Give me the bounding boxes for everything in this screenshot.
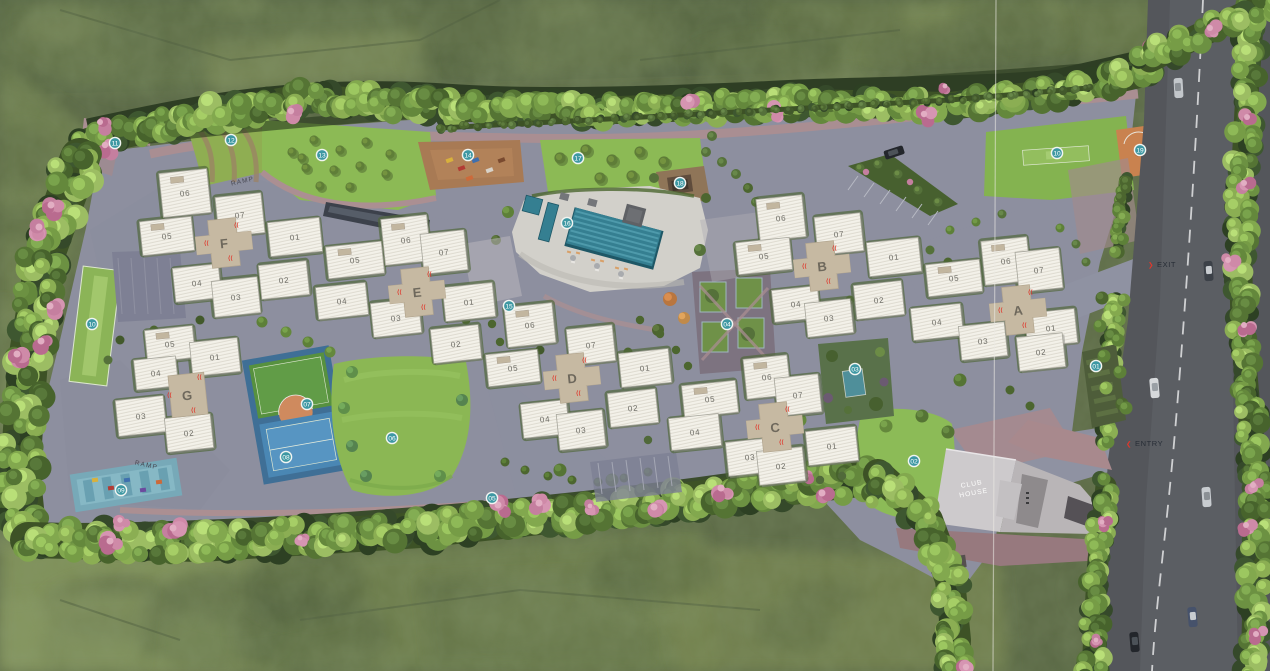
svg-text:⟨⟨: ⟨⟨ bbox=[191, 407, 196, 414]
svg-text:ENTRY: ENTRY bbox=[1135, 439, 1163, 448]
svg-text:04: 04 bbox=[723, 321, 731, 328]
svg-text:18: 18 bbox=[676, 180, 684, 187]
svg-text:⟨⟨: ⟨⟨ bbox=[167, 392, 172, 399]
svg-text:D: D bbox=[567, 371, 578, 387]
svg-text:04: 04 bbox=[931, 317, 942, 327]
svg-text:07: 07 bbox=[438, 247, 449, 257]
svg-text:❯: ❯ bbox=[1148, 261, 1153, 269]
svg-text:07: 07 bbox=[303, 401, 311, 408]
svg-text:⟨⟨: ⟨⟨ bbox=[998, 307, 1003, 314]
svg-text:02: 02 bbox=[910, 458, 918, 465]
svg-text:⟨⟨: ⟨⟨ bbox=[785, 406, 790, 413]
svg-text:⟨⟨: ⟨⟨ bbox=[582, 357, 587, 364]
svg-text:05: 05 bbox=[704, 394, 715, 404]
svg-text:03: 03 bbox=[135, 411, 146, 421]
svg-text:02: 02 bbox=[873, 295, 884, 305]
svg-text:01: 01 bbox=[289, 232, 300, 242]
svg-text:⟨⟨: ⟨⟨ bbox=[421, 304, 426, 311]
svg-text:01: 01 bbox=[1045, 323, 1056, 333]
svg-text:05: 05 bbox=[488, 495, 496, 502]
svg-text:02: 02 bbox=[278, 275, 289, 285]
svg-text:03: 03 bbox=[575, 425, 586, 435]
svg-text:07: 07 bbox=[234, 210, 245, 220]
svg-text:09: 09 bbox=[117, 487, 125, 494]
svg-text:02: 02 bbox=[450, 339, 461, 349]
svg-text:❮: ❮ bbox=[1126, 440, 1131, 448]
svg-text:07: 07 bbox=[585, 340, 596, 350]
svg-text:12: 12 bbox=[227, 137, 235, 144]
svg-text:02: 02 bbox=[775, 461, 786, 471]
svg-text:06: 06 bbox=[179, 188, 190, 198]
svg-text:⟨⟨: ⟨⟨ bbox=[204, 240, 209, 247]
svg-text:⟨⟨: ⟨⟨ bbox=[826, 278, 831, 285]
svg-text:01: 01 bbox=[1092, 363, 1100, 370]
svg-text:03: 03 bbox=[851, 366, 859, 373]
svg-text:07: 07 bbox=[1033, 265, 1044, 275]
svg-text:⟨⟨: ⟨⟨ bbox=[755, 424, 760, 431]
svg-text:10: 10 bbox=[1053, 150, 1061, 157]
svg-text:05: 05 bbox=[507, 363, 518, 373]
svg-text:⟨⟨: ⟨⟨ bbox=[576, 390, 581, 397]
svg-text:04: 04 bbox=[150, 368, 161, 378]
svg-text:04: 04 bbox=[790, 299, 801, 309]
svg-text:04: 04 bbox=[336, 296, 347, 306]
svg-text:02: 02 bbox=[1035, 347, 1046, 357]
svg-text:14: 14 bbox=[464, 152, 472, 159]
svg-text:⟨⟨: ⟨⟨ bbox=[779, 439, 784, 446]
svg-text:17: 17 bbox=[574, 155, 582, 162]
svg-text:03: 03 bbox=[230, 292, 241, 302]
svg-text:06: 06 bbox=[400, 235, 411, 245]
svg-text:16: 16 bbox=[563, 220, 571, 227]
svg-text:05: 05 bbox=[349, 255, 360, 265]
svg-text:07: 07 bbox=[833, 229, 844, 239]
svg-text:03: 03 bbox=[390, 313, 401, 323]
svg-text:⟨⟨: ⟨⟨ bbox=[802, 263, 807, 270]
svg-text:03: 03 bbox=[977, 336, 988, 346]
svg-text:B: B bbox=[817, 259, 828, 275]
svg-text:05: 05 bbox=[161, 231, 172, 241]
svg-text:02: 02 bbox=[183, 428, 194, 438]
svg-text:01: 01 bbox=[209, 352, 220, 362]
svg-text:⟨⟨: ⟨⟨ bbox=[832, 245, 837, 252]
svg-text:⟨⟨: ⟨⟨ bbox=[197, 374, 202, 381]
svg-text:01: 01 bbox=[826, 441, 837, 451]
svg-text:04: 04 bbox=[539, 414, 550, 424]
svg-text:10: 10 bbox=[88, 321, 96, 328]
svg-text:G: G bbox=[181, 388, 193, 404]
svg-text:06: 06 bbox=[761, 372, 772, 382]
svg-text:06: 06 bbox=[524, 320, 535, 330]
svg-text:08: 08 bbox=[282, 454, 290, 461]
svg-text:EXIT: EXIT bbox=[1157, 260, 1176, 269]
svg-text:11: 11 bbox=[112, 140, 119, 147]
svg-text:02: 02 bbox=[627, 403, 638, 413]
svg-text:⟨⟨: ⟨⟨ bbox=[228, 255, 233, 262]
svg-text:03: 03 bbox=[823, 313, 834, 323]
svg-text:01: 01 bbox=[639, 363, 650, 373]
svg-text:⟨⟨: ⟨⟨ bbox=[552, 375, 557, 382]
svg-text:01: 01 bbox=[463, 297, 474, 307]
svg-text:06: 06 bbox=[388, 435, 396, 442]
svg-text:04: 04 bbox=[191, 278, 202, 288]
svg-text:07: 07 bbox=[792, 390, 803, 400]
svg-text:13: 13 bbox=[318, 152, 326, 159]
svg-text:19: 19 bbox=[1136, 147, 1144, 154]
svg-text:01: 01 bbox=[888, 252, 899, 262]
svg-text:04: 04 bbox=[689, 427, 700, 437]
svg-text:F: F bbox=[219, 236, 229, 252]
svg-text:⟨⟨: ⟨⟨ bbox=[427, 271, 432, 278]
svg-text:06: 06 bbox=[775, 213, 786, 223]
svg-text:05: 05 bbox=[948, 273, 959, 283]
svg-text:⟨⟨: ⟨⟨ bbox=[397, 289, 402, 296]
svg-text:03: 03 bbox=[744, 452, 755, 462]
svg-text:⟨⟨: ⟨⟨ bbox=[234, 222, 239, 229]
svg-text:⟨⟨: ⟨⟨ bbox=[1028, 289, 1033, 296]
svg-text:06: 06 bbox=[1000, 256, 1011, 266]
svg-text:05: 05 bbox=[758, 251, 769, 261]
svg-text:15: 15 bbox=[505, 303, 513, 310]
svg-text:⟨⟨: ⟨⟨ bbox=[1022, 322, 1027, 329]
svg-text:05: 05 bbox=[164, 339, 175, 349]
